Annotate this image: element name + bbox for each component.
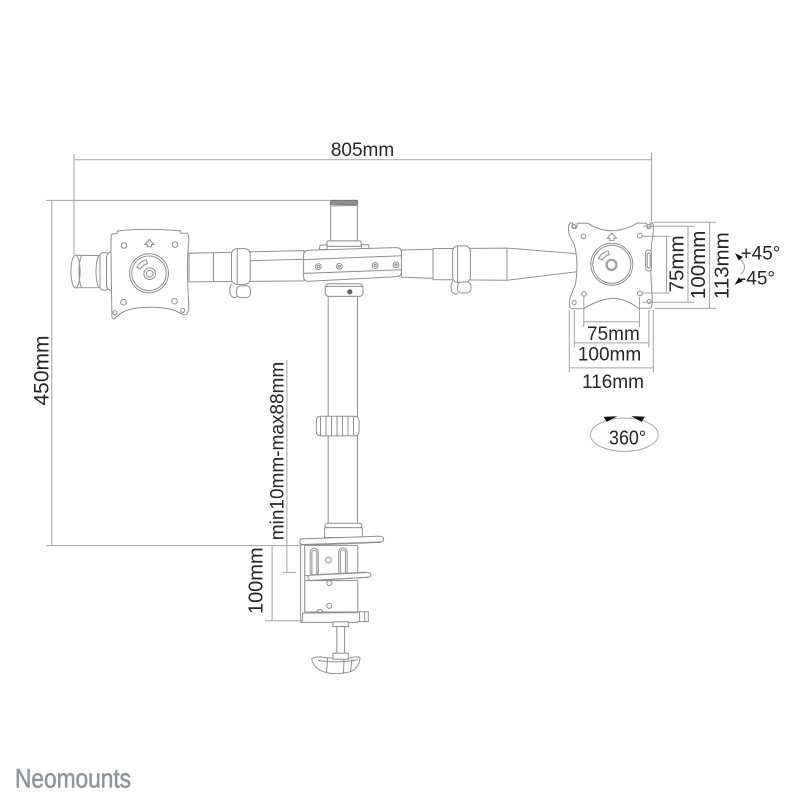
svg-text:100mm: 100mm [578,345,641,366]
svg-text:min10mm-max88mm: min10mm-max88mm [268,362,289,540]
svg-text:450mm: 450mm [31,335,54,405]
svg-text:100mm: 100mm [246,547,268,614]
svg-text:75mm: 75mm [587,324,640,345]
svg-text:360°: 360° [609,427,646,449]
svg-text:100mm: 100mm [687,231,710,299]
svg-text:116mm: 116mm [582,372,644,393]
svg-text:75mm: 75mm [666,235,689,292]
svg-text:Neomounts: Neomounts [15,764,131,794]
svg-text:805mm: 805mm [331,140,394,161]
svg-text:+45°: +45° [741,244,781,265]
svg-text:-45°: -45° [740,269,775,290]
svg-text:113mm: 113mm [711,232,734,299]
